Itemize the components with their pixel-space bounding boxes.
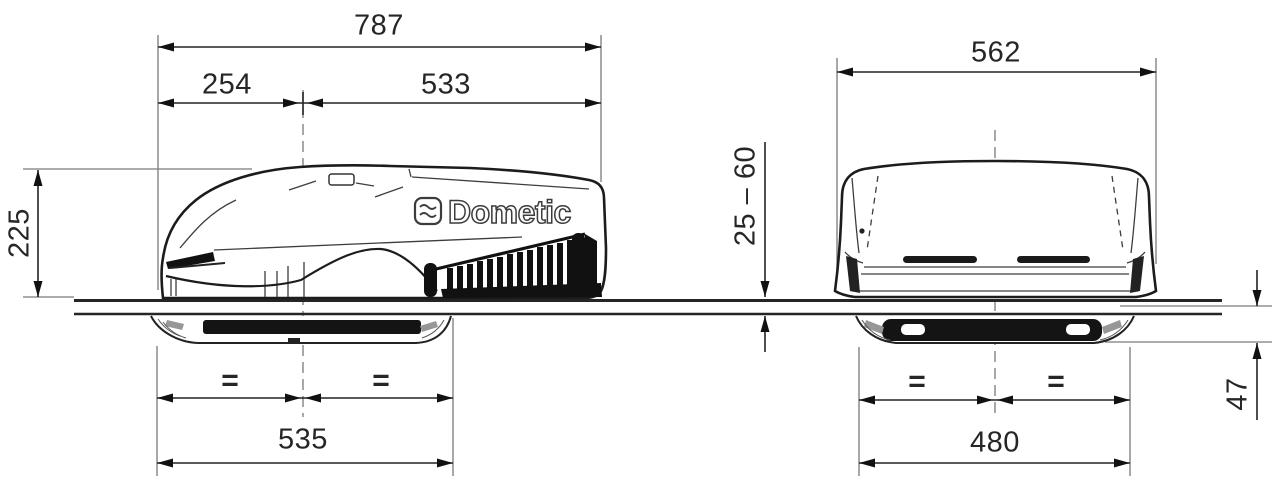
front-view-vent-right xyxy=(1017,256,1090,263)
equal-mark-front-right: = xyxy=(1047,365,1065,399)
ceiling-distribution-box-side xyxy=(151,316,451,343)
dim-label-ceiling-unit-height: 47 xyxy=(1222,377,1255,410)
roof-cross-section-lines xyxy=(74,301,1222,315)
dim-label-front-section: 254 xyxy=(202,69,252,102)
technical-dimension-drawing: Dometic 787 254 533 225 = = 535 562 25 –… xyxy=(0,0,1280,493)
side-view-top-vent xyxy=(329,174,354,185)
equal-mark-side-right: = xyxy=(372,364,390,398)
front-view-vent-left xyxy=(903,256,977,263)
equal-mark-front-left: = xyxy=(908,365,926,399)
dometic-wave-icon xyxy=(415,198,441,224)
dim-label-roof-thickness: 25 – 60 xyxy=(730,146,763,246)
dim-label-overall-width: 562 xyxy=(971,37,1021,70)
dim-label-roof-opening-side: 535 xyxy=(278,424,328,457)
dim-label-height: 225 xyxy=(4,208,37,258)
technical-drawing-canvas: Dometic xyxy=(0,0,1280,493)
dim-label-roof-opening-front: 480 xyxy=(970,427,1020,460)
ceiling-distribution-box-front xyxy=(856,316,1134,343)
equal-mark-side-left: = xyxy=(221,364,239,398)
front-view-unit xyxy=(835,161,1156,297)
dometic-logo-text: Dometic xyxy=(448,194,571,230)
dim-label-rear-section: 533 xyxy=(421,69,471,102)
dim-label-overall-length: 787 xyxy=(354,10,404,43)
